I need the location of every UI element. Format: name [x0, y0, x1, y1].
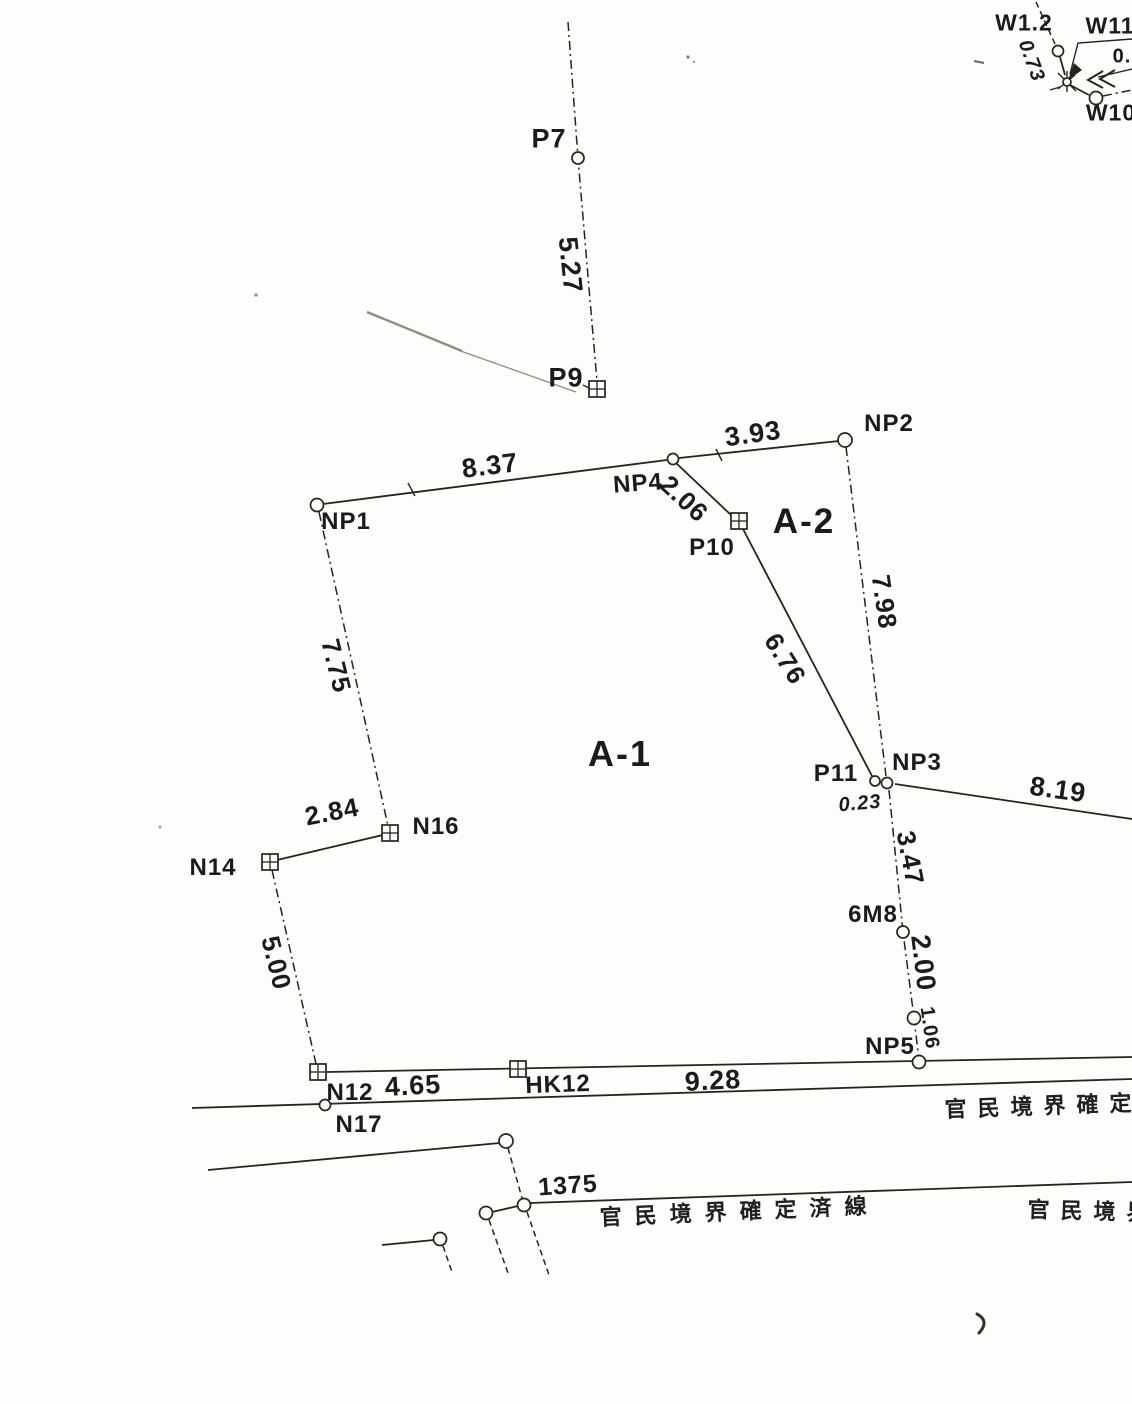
line-to-c5	[382, 1240, 434, 1245]
pen-mark	[977, 1314, 984, 1333]
speck-4	[158, 825, 161, 828]
marker-circle-p7	[572, 152, 584, 164]
point-label-p9: P9	[548, 363, 583, 394]
boundary-note-bottom-right: 官民境界	[1027, 1192, 1132, 1227]
marker-square-n16	[382, 825, 398, 841]
parcel-label-a1: A-1	[588, 733, 652, 775]
star-center	[1063, 78, 1071, 86]
faint-line-1	[367, 312, 462, 351]
point-label-np2: NP2	[864, 410, 914, 438]
point-label-w12: W1.2	[995, 10, 1053, 37]
marker-square-p9	[589, 381, 605, 397]
distance-label-4-65: 4.65	[384, 1069, 442, 1103]
marker-circle-c3	[518, 1199, 531, 1212]
boundary-note-right: 官民境界確定	[944, 1085, 1132, 1124]
marker-circle-np2	[838, 433, 852, 447]
speck-1	[686, 55, 689, 58]
marker-circle-c5	[434, 1233, 447, 1246]
line-w12-star	[1060, 57, 1065, 75]
point-label-np3: NP3	[892, 749, 942, 777]
line-p7-p9	[568, 22, 597, 381]
point-label-np5: NP5	[865, 1033, 915, 1061]
line-c5-stub	[443, 1246, 452, 1272]
line-star-w10	[1070, 85, 1089, 95]
marker-square-n12	[310, 1064, 326, 1080]
line-w10-east	[1103, 90, 1132, 96]
marker-circle-np4	[668, 454, 679, 465]
parcel-label-a2: A-2	[773, 502, 835, 542]
point-label-n14: N14	[189, 854, 236, 882]
distance-label-0-23: 0.23	[838, 791, 883, 818]
point-label-n17: N17	[335, 1111, 382, 1139]
point-label-np1: NP1	[321, 508, 371, 536]
point-label-n12: N12	[326, 1079, 373, 1107]
distance-label-0-partial: 0.	[1113, 46, 1132, 69]
distance-label-5-27: 5.27	[552, 235, 589, 294]
tick-on-393-line	[716, 449, 722, 461]
point-label-hk12: HK12	[525, 1070, 591, 1100]
line-n14-n16	[277, 835, 383, 860]
line-c1-c3	[508, 1148, 522, 1198]
marker-square-n14	[262, 854, 278, 870]
point-label-6m8: 6M8	[848, 901, 898, 929]
line-c3-stub	[527, 1212, 549, 1275]
distance-label-9-28: 9.28	[684, 1064, 742, 1098]
marker-circle-p11	[870, 776, 880, 786]
leader-0	[1088, 69, 1132, 88]
marker-circle-w12	[1053, 46, 1064, 57]
faint-scan-line	[367, 312, 576, 392]
speck-3	[254, 293, 258, 297]
point-label-n16: N16	[412, 813, 459, 841]
survey-canvas: W1.2 W11 0.73 0. W10 P7 5.27 P9 8.37 NP1…	[0, 0, 1132, 1404]
marker-circle-c1	[499, 1134, 513, 1148]
marker-square-p10	[731, 513, 747, 529]
line-c4-c3	[492, 1206, 518, 1212]
line-np3-east	[895, 784, 1132, 819]
point-label-w10: W10	[1086, 100, 1132, 127]
line-p9-leader	[583, 385, 589, 388]
speck-5	[974, 61, 984, 63]
point-label-p10: P10	[689, 534, 735, 562]
point-label-p11: P11	[814, 760, 858, 788]
line-c4-stub	[489, 1220, 508, 1273]
marker-circle-c4	[480, 1207, 493, 1220]
tick-on-837-line	[408, 483, 415, 496]
point-label-p7: P7	[531, 124, 566, 155]
point-label-w11: W11	[1085, 13, 1132, 40]
distance-label-1375: 1375	[537, 1169, 599, 1202]
line-to-c1	[208, 1143, 500, 1170]
speck-2	[693, 61, 695, 63]
marker-square-hk12	[510, 1061, 526, 1077]
marker-circle-np3	[882, 778, 893, 789]
